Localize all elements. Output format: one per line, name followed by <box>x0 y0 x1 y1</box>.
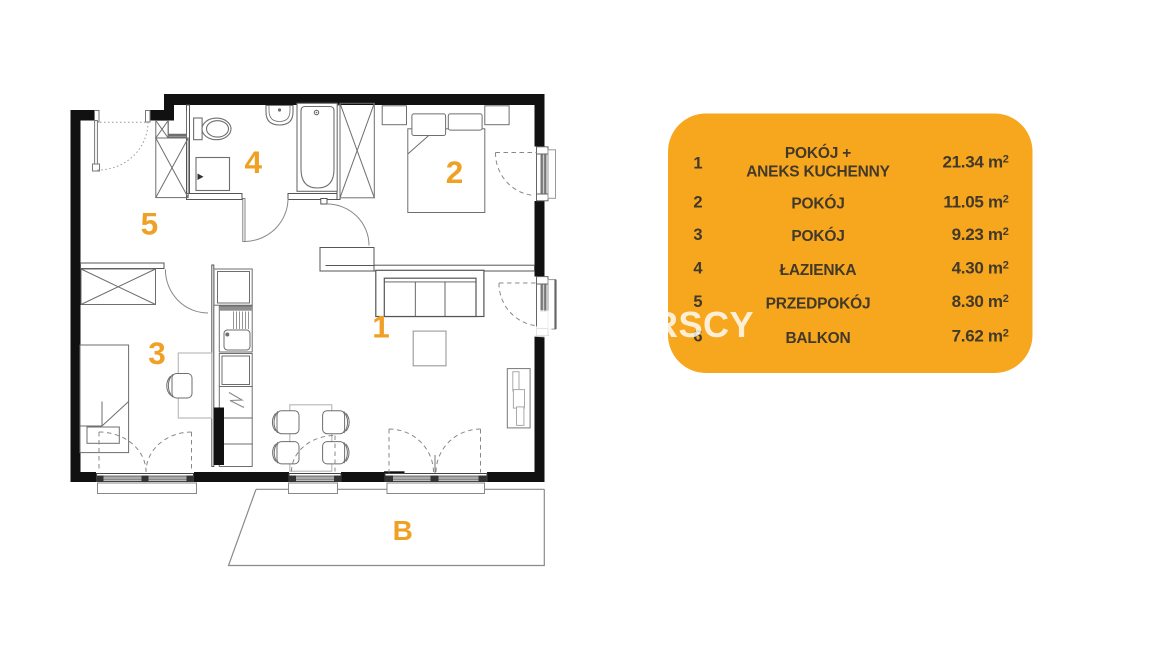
svg-text:1: 1 <box>693 155 702 173</box>
svg-text:POKÓJ: POKÓJ <box>791 227 844 245</box>
svg-text:9.23 m2: 9.23 m2 <box>952 225 1009 244</box>
svg-text:11.05 m2: 11.05 m2 <box>943 193 1008 212</box>
svg-text:4: 4 <box>245 144 263 180</box>
svg-text:4.30 m2: 4.30 m2 <box>952 259 1009 278</box>
svg-text:BALKON: BALKON <box>785 330 850 347</box>
svg-text:3: 3 <box>693 226 702 244</box>
svg-text:5: 5 <box>141 206 159 242</box>
svg-text:2: 2 <box>693 194 702 212</box>
svg-text:21.34 m2: 21.34 m2 <box>942 153 1008 172</box>
svg-text:RSCY: RSCY <box>652 304 754 345</box>
svg-text:2: 2 <box>446 154 464 190</box>
svg-text:POKÓJ: POKÓJ <box>791 195 844 213</box>
svg-text:8.30 m2: 8.30 m2 <box>952 292 1009 311</box>
svg-text:4: 4 <box>693 260 703 278</box>
svg-text:ANEKS KUCHENNY: ANEKS KUCHENNY <box>746 164 890 181</box>
svg-text:1: 1 <box>372 309 390 345</box>
svg-text:ŁAZIENKA: ŁAZIENKA <box>780 262 857 279</box>
svg-text:PRZEDPOKÓJ: PRZEDPOKÓJ <box>766 295 871 313</box>
svg-text:B: B <box>393 515 413 546</box>
svg-text:POKÓJ +: POKÓJ + <box>785 144 851 162</box>
svg-text:7.62 m2: 7.62 m2 <box>952 326 1009 345</box>
svg-text:3: 3 <box>148 335 166 371</box>
